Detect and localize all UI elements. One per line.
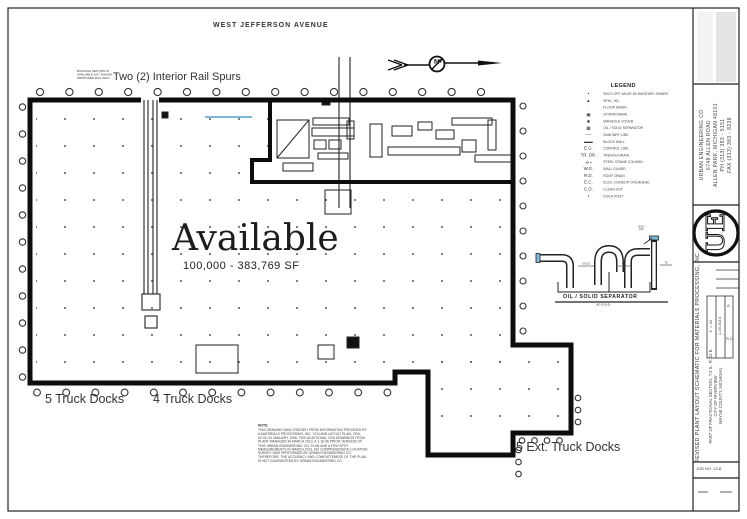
dock-label-ext: 5 Ext. Truck Docks	[516, 440, 620, 454]
titleblock-ghosts	[697, 12, 736, 82]
legend-symbol: E.C.	[576, 181, 601, 185]
legend-item: ▦OIL / SOLID SEPARATOR	[576, 125, 668, 132]
legend-item: E.C.ELEC. CONDUIT OVERHEAD	[576, 179, 668, 186]
company-street: 6748 ALLEN ROAD	[706, 85, 713, 205]
legend-item: ✸MANHOLE COVER	[576, 118, 668, 125]
legend-item: W.G.WALL GUARD	[576, 166, 668, 173]
plan-sheet: UE	[0, 0, 747, 519]
legend-label: BLOCK WALL	[603, 140, 625, 144]
job-number: JOB NO. 13-B	[696, 466, 722, 471]
legend-symbol: ▪	[576, 194, 601, 198]
dock-label-left: 5 Truck Docks	[45, 392, 124, 406]
legend-label: DOCK POST	[603, 195, 623, 199]
legend-label: CONTROL LINE	[603, 147, 628, 151]
available-size: 100,000 - 383,769 SF	[183, 260, 299, 272]
legend-label: MANHOLE COVER	[603, 120, 633, 124]
legend-item: E.G.CONTROL LINE	[576, 145, 668, 152]
available-title: Available	[172, 218, 339, 259]
company-address-block: URBAN ENGINEERING CO 6748 ALLEN ROAD ALL…	[696, 85, 736, 205]
note-title: NOTE:	[258, 424, 367, 428]
legend-symbol: ──	[576, 133, 601, 137]
legend-symbol: ▦	[576, 126, 601, 131]
rail-spurs-label: Two (2) Interior Rail Spurs	[113, 71, 241, 83]
legend-title: LEGEND	[611, 82, 668, 88]
legend-symbol: W.G.	[576, 167, 601, 171]
company-phone: PH (313) 383 - 5151	[720, 85, 727, 205]
legend-symbol: ·	[576, 106, 601, 110]
legend-symbol: ▣	[576, 112, 601, 117]
legend-label: STEEL CRANE COLUMN	[603, 160, 642, 164]
legend-item: R.D.ROOF DRAIN	[576, 173, 668, 180]
rail-spurs-note: BUILDING SECTION IS AVAILABLE NOT SHOWN …	[77, 70, 112, 81]
drawing-scale: 1" = 40'	[708, 293, 716, 359]
legend-symbol: C.O.	[576, 187, 601, 191]
note-line: IS NOT GUARANTEED BY URBAN ENGINEERING C…	[258, 460, 367, 464]
legend-symbol: E.G.	[576, 146, 601, 150]
legend-symbol: ▲	[576, 99, 601, 103]
legend-label: SANITARY LINE	[603, 133, 628, 137]
north-arrow	[388, 57, 502, 72]
company-fax: FAX (313) 383 - 8238	[727, 85, 734, 205]
legend-item: ▲SPKL. HD.	[576, 98, 668, 105]
company-logo: UE	[694, 211, 738, 255]
legend-symbol: ✸	[576, 119, 601, 124]
legend-label: TRENCH DRAIN	[603, 154, 629, 158]
legend-label: STORM DRAIN	[603, 113, 627, 117]
legend-symbol: ✛ ▪	[576, 160, 601, 165]
legend-item: ▬▬BLOCK WALL	[576, 138, 668, 145]
legend-item: ▪DOCK POST	[576, 193, 668, 200]
legend-symbol: TR. DR.	[576, 153, 601, 157]
legend-label: FLOOR DRAIN	[603, 106, 626, 110]
drawing-date: 1-29-2013	[717, 293, 725, 359]
separator-detail	[536, 236, 668, 302]
drawing-rev: A	[727, 303, 730, 308]
legend-item: TR. DR.TRENCH DRAIN	[576, 152, 668, 159]
legend-label: OIL / SOLID SEPARATOR	[603, 126, 643, 130]
separator-label-sanitary: TO SANITARY	[660, 262, 672, 267]
legend-item: •SHUT-OFF VALVE W/ SANITARY SEWER	[576, 91, 668, 98]
separator-label-solid: SOLID COLLECTION	[578, 263, 594, 268]
legend-symbol: ▬▬	[576, 140, 601, 144]
street-label: WEST JEFFERSON AVENUE	[213, 22, 329, 29]
legend-label: SHUT-OFF VALVE W/ SANITARY SEWER	[603, 92, 668, 96]
dock-label-mid: 4 Truck Docks	[153, 392, 232, 406]
separator-label-shutoff: SHUT OFF	[638, 226, 645, 231]
legend-label: WALL GUARD	[603, 167, 625, 171]
legend-symbol: R.D.	[576, 174, 601, 178]
legend-item: ·FLOOR DRAIN	[576, 104, 668, 111]
note-block: NOTE: THIS DRAWING WAS CREATED FROM INFO…	[258, 424, 367, 463]
legend-item: ▣STORM DRAIN	[576, 111, 668, 118]
north-label: N	[434, 59, 439, 66]
company-logo-monogram: UE	[701, 213, 730, 252]
legend-label: SPKL. HD.	[603, 99, 619, 103]
legend-symbol: •	[576, 92, 601, 96]
drawing-title: REVISED PLANT LAYOUT SCHEMATIC FOR MATER…	[695, 261, 707, 463]
drawing-by: R.C.	[726, 336, 734, 341]
legend-label: ELEC. CONDUIT OVERHEAD	[603, 181, 649, 185]
legend: LEGEND •SHUT-OFF VALVE W/ SANITARY SEWER…	[576, 82, 668, 200]
separator-title: OIL / SOLID SEPARATOR	[563, 294, 637, 300]
company-name: URBAN ENGINEERING CO	[699, 85, 706, 205]
legend-label: CLEAN OUT	[603, 188, 623, 192]
separator-scale-note: (NO SCALE)	[596, 304, 610, 307]
legend-item: ──SANITARY LINE	[576, 132, 668, 139]
legend-item: ✛ ▪STEEL CRANE COLUMN	[576, 159, 668, 166]
legend-item: C.O.CLEAN OUT	[576, 186, 668, 193]
separator-label-oil: OIL COLLECTION	[616, 263, 632, 268]
legend-label: ROOF DRAIN	[603, 174, 624, 178]
company-city: ALLEN PARK, MICHIGAN 48101	[713, 85, 720, 205]
